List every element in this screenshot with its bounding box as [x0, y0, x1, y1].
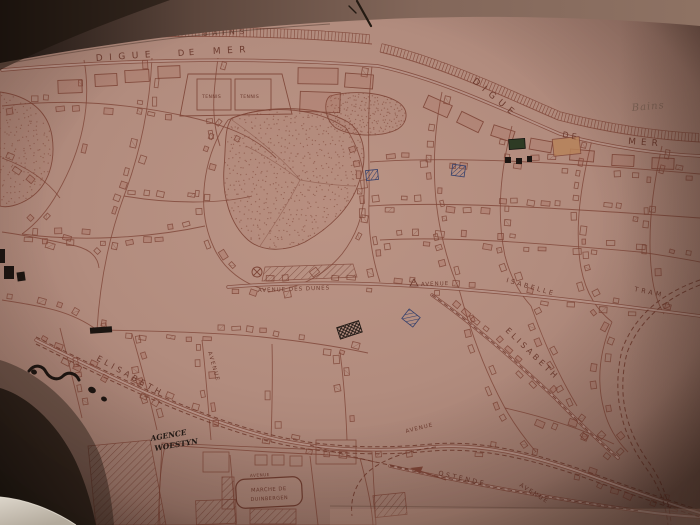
photo-shading [0, 0, 700, 525]
map-photo: BAINS DIGUE DE MER DIGUE DE MER Bains TE… [0, 0, 700, 525]
hand-drawn-town-map: BAINS DIGUE DE MER DIGUE DE MER Bains TE… [0, 0, 700, 525]
